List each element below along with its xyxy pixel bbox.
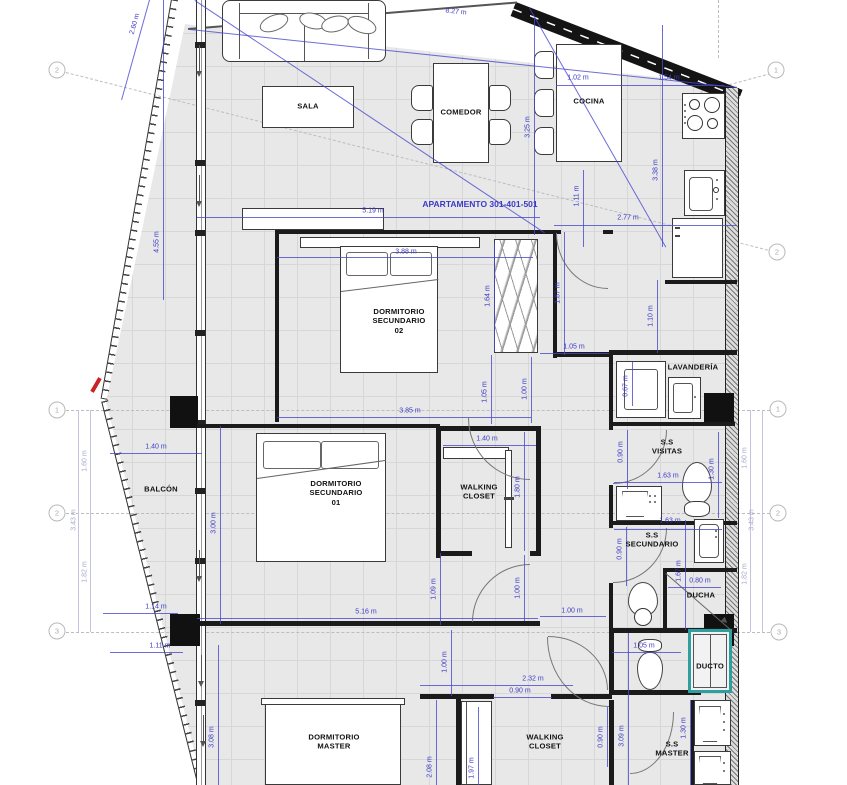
grid-bubble: 3 (49, 623, 66, 640)
room-label: WALKING CLOSET (460, 483, 497, 502)
dimension-line (556, 85, 724, 86)
dimension-line-faded (762, 410, 763, 632)
dimension-line (628, 633, 629, 785)
dimension-label: 3.00 m (211, 512, 218, 533)
dimension-label: 1.87 m (555, 282, 562, 303)
wall-segment (609, 350, 613, 430)
dimension-line (718, 432, 719, 518)
apartment-title: APARTAMENTO 301-401-501 (422, 199, 537, 209)
dimension-label: 1.82 m (82, 561, 89, 582)
bathtub (694, 519, 724, 563)
dimension-line (540, 616, 606, 617)
laundry-sink (668, 377, 701, 419)
column (170, 614, 200, 646)
dimension-line (657, 280, 658, 353)
dimension-label: 0.90 m (617, 538, 624, 559)
dimension-line (491, 355, 492, 424)
dining-chair (489, 119, 511, 145)
floor-plan: APARTAMENTO 301-401-501 SALACOMEDORCOCIN… (0, 0, 847, 785)
dimension-label: 1.40 m (476, 436, 497, 443)
wall-segment (609, 583, 613, 632)
dimension-line (540, 353, 609, 354)
dimension-line (607, 707, 608, 767)
dimension-line (690, 700, 691, 785)
window-arrow-icon (200, 741, 206, 747)
wall-segment (436, 551, 472, 556)
bar-stool (534, 89, 554, 117)
dining-chair (411, 119, 433, 145)
dimension-label: 3.43 m (749, 509, 756, 530)
grid-bubble: 2 (769, 244, 786, 261)
dimension-label: 0.90 m (509, 688, 530, 695)
wall-segment (436, 426, 441, 558)
dimension-line (662, 25, 663, 247)
room-label: SALA (297, 101, 318, 110)
room-label: DORMITORIO MASTER (308, 733, 359, 752)
red-section-mark (90, 377, 101, 393)
window-arrow-icon (199, 550, 200, 576)
dimension-label: 3.88 m (395, 249, 416, 256)
room-label: COCINA (573, 96, 604, 105)
dimension-label: 3.09 m (619, 725, 626, 746)
wall-segment (609, 422, 735, 426)
pillow (390, 252, 432, 276)
vanity-sink (616, 486, 662, 521)
wall-segment (663, 568, 737, 572)
wall-segment (609, 350, 737, 355)
window-mullion (195, 488, 205, 494)
refrigerator (672, 218, 723, 278)
dimension-line (614, 482, 722, 483)
wall-segment (536, 426, 541, 556)
dining-chair (411, 85, 433, 111)
dimension-line (564, 232, 565, 355)
dimension-line (627, 430, 628, 489)
wall-segment (609, 632, 614, 694)
toilet-base (634, 608, 652, 626)
dimension-label: 3.85 m (399, 408, 420, 415)
dimension-label: 8.27 m (445, 7, 467, 16)
dimension-label: 1.11 m (574, 186, 581, 207)
dimension-line (220, 426, 221, 624)
window-arrow-icon (196, 71, 202, 77)
dimension-line (436, 700, 437, 785)
dimension-label: 1.60 m (742, 447, 749, 468)
dimension-label: 1.54 m (658, 75, 679, 82)
double-sink (694, 700, 731, 746)
room-label: S.S SECUNDARIO (625, 531, 678, 550)
dimension-line (685, 520, 686, 630)
dimension-label: 1.97 m (469, 757, 476, 778)
dimension-label: 1.05 m (633, 643, 654, 650)
room-label: DORMITORIO SECUNDARIO 01 (309, 479, 362, 507)
dimension-line (110, 453, 202, 454)
window-mullion (195, 700, 205, 706)
dimension-label: 1.05 m (563, 344, 584, 351)
dimension-line (668, 587, 721, 588)
dimension-line (524, 555, 525, 621)
dimension-label: 1.80 m (515, 476, 522, 497)
closet-shelf (461, 701, 492, 785)
dimension-label: 2.77 m (617, 215, 638, 222)
window-arrow-icon (201, 655, 202, 681)
dimension-line (163, 0, 164, 300)
dimension-label: 1.02 m (567, 75, 588, 82)
dimension-label: 1.30 m (681, 717, 688, 738)
window-mullion (195, 160, 205, 166)
dimension-line (420, 685, 573, 686)
dimension-label: 2.32 m (522, 676, 543, 683)
dimension-label: 3.43 m (71, 509, 78, 530)
room-label: DUCHA (687, 590, 715, 599)
dimension-label: 1.00 m (561, 608, 582, 615)
room-label: DORMITORIO SECUNDARIO 02 (372, 307, 425, 335)
dimension-label: 3.25 m (525, 116, 532, 137)
dimension-line (583, 170, 584, 247)
wall-segment (530, 551, 541, 556)
room-label: DUCTO (696, 661, 724, 670)
window-arrow-icon (198, 681, 204, 687)
dimension-label: 1.14 m (145, 604, 166, 611)
column (704, 393, 734, 424)
dimension-label: 1.82 m (742, 563, 749, 584)
double-sink (694, 751, 731, 785)
dimension-line (612, 652, 681, 653)
dimension-line (110, 652, 183, 653)
dimension-label: 1.10 m (648, 305, 655, 326)
dimension-label: 1.67 m (676, 560, 683, 581)
dimension-label: 3.38 m (653, 159, 660, 180)
dimension-line (524, 432, 525, 551)
dimension-label: 3.08 m (209, 726, 216, 747)
window-mullion (195, 230, 205, 236)
dimension-line (494, 243, 495, 351)
dimension-line (218, 645, 219, 785)
dimension-label: 1.63 m (659, 518, 680, 525)
wall-segment (609, 485, 613, 528)
dimension-line (440, 553, 441, 625)
room-label: COMEDOR (440, 107, 481, 116)
pillow (263, 441, 321, 469)
column (170, 396, 198, 428)
pillow (346, 252, 388, 276)
dimension-label: 1.60 m (82, 450, 89, 471)
dimension-label: 1.11 m (150, 643, 171, 650)
dimension-label: 5.19 m (362, 208, 383, 215)
window-arrow-icon (196, 576, 202, 582)
cooktop (682, 93, 725, 139)
dimension-line (493, 697, 552, 698)
grid-bubble: 2 (49, 62, 66, 79)
dimension-line (103, 613, 178, 614)
dimension-line (531, 357, 532, 423)
dimension-label: 1.05 m (482, 381, 489, 402)
dining-chair (489, 85, 511, 111)
dimension-label: 5.16 m (355, 609, 376, 616)
dimension-line (277, 417, 531, 418)
room-label: S.S MASTER (655, 740, 688, 759)
grid-bubble: 1 (49, 402, 66, 419)
dimension-line-faded (90, 410, 91, 632)
dimension-label: 1.09 m (431, 578, 438, 599)
window-arrow-icon (196, 201, 202, 207)
dimension-label: 1.00 m (442, 651, 449, 672)
dimension-line (443, 445, 536, 446)
dimension-line (554, 225, 737, 226)
grid-bubble: 1 (768, 62, 785, 79)
dimension-label: 0.90 m (598, 726, 605, 747)
dimension-label: 0.90 m (618, 441, 625, 462)
grid-dashed-line (66, 513, 770, 514)
window-arrow-icon (199, 45, 200, 71)
toilet-tank (684, 501, 710, 517)
dimension-line (197, 618, 538, 619)
dimension-line (197, 217, 540, 218)
dimension-label: 4.55 m (154, 231, 161, 252)
dimension-label: 0.80 m (689, 578, 710, 585)
dimension-label: 0.67 m (623, 375, 630, 396)
window-mullion (195, 330, 205, 336)
grid-bubble: 1 (770, 401, 787, 418)
dimension-label: 2.08 m (427, 756, 434, 777)
grid-dashed-line (718, 0, 719, 58)
room-label: BALCÓN (144, 484, 178, 493)
kitchen-sink (684, 170, 725, 216)
wall-segment (665, 280, 737, 284)
dimension-label: 1.00 m (522, 378, 529, 399)
dimension-line-faded (78, 410, 79, 632)
dimension-line (478, 707, 479, 785)
room-label: LAVANDERÍA (668, 362, 719, 371)
dimension-label: 1.64 m (485, 285, 492, 306)
grid-bubble: 2 (770, 505, 787, 522)
grid-bubble: 2 (49, 505, 66, 522)
wall-segment (197, 424, 440, 428)
wall-segment (609, 700, 614, 785)
window-arrow-icon (203, 715, 204, 741)
wall-segment (275, 230, 279, 422)
sofa (222, 0, 386, 62)
dimension-label: 1.30 m (709, 458, 716, 479)
dimension-label: 1.40 m (145, 444, 166, 451)
dimension-line (632, 362, 633, 406)
grid-bubble: 3 (771, 624, 788, 641)
wall-segment (275, 230, 561, 234)
bar-stool (534, 127, 554, 155)
throw-pillow (319, 13, 350, 35)
dimension-label: 1.63 m (657, 473, 678, 480)
dimension-line (451, 630, 452, 696)
room-label: S.S VISITAS (652, 438, 682, 457)
toilet (682, 462, 712, 504)
window-arrow-icon (199, 175, 200, 201)
wall-segment (663, 568, 667, 630)
dimension-label: 1.00 m (515, 577, 522, 598)
room-label: WALKING CLOSET (526, 733, 563, 752)
